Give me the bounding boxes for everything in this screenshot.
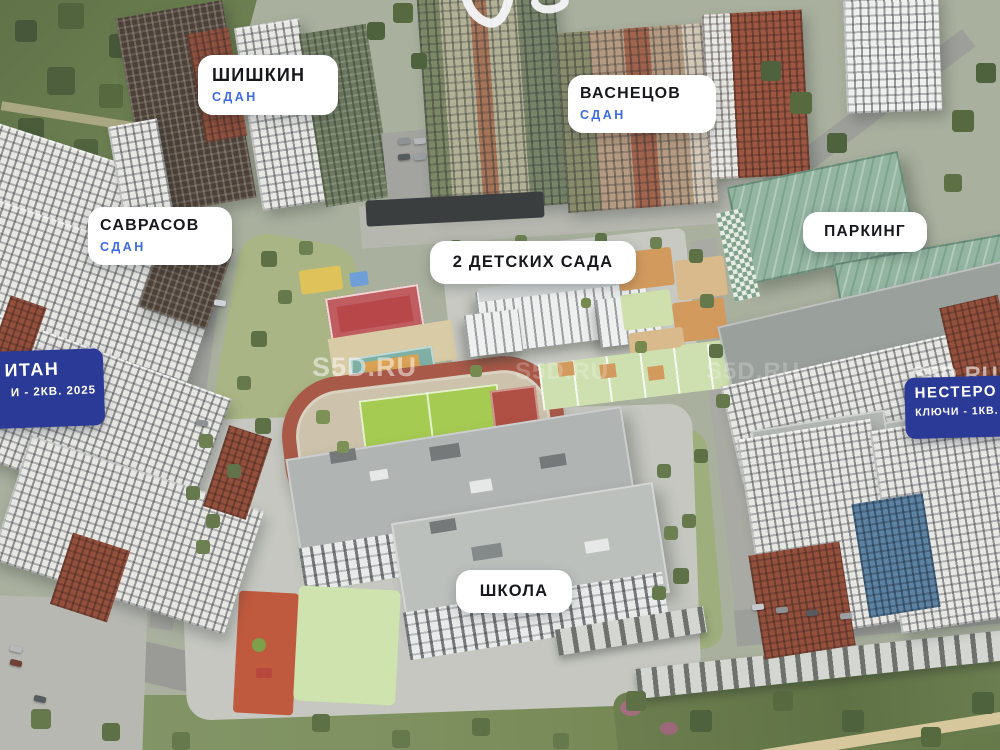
flower-bush <box>660 722 678 735</box>
label-name: ШИШКИН <box>212 66 324 85</box>
tree-dots <box>0 0 2 2</box>
bottom-left-pavement <box>0 595 148 750</box>
highrise-tower <box>843 0 942 114</box>
label-status: СДАН <box>100 240 220 254</box>
play-structure <box>256 668 272 678</box>
watermark: S5D.RU <box>706 358 800 386</box>
car <box>398 153 411 160</box>
car <box>398 137 411 144</box>
yard-canopy <box>647 365 665 381</box>
label-kindergartens[interactable]: 2 ДЕТСКИХ САДА <box>430 241 636 284</box>
car <box>840 612 852 619</box>
label-name: САВРАСОВ <box>100 218 220 235</box>
banner-right-keys[interactable]: НЕСТЕРО КЛЮЧИ - 1КВ. <box>904 374 1000 439</box>
playground-patch <box>674 255 729 301</box>
car <box>752 603 764 610</box>
play-structure <box>252 638 266 652</box>
banner-keys-date: КЛЮЧИ - 1КВ. <box>915 403 1000 419</box>
label-savrasov[interactable]: САВРАСОВ СДАН <box>88 207 232 265</box>
residential-brick-section <box>748 541 855 659</box>
label-school[interactable]: ШКОЛА <box>456 570 572 613</box>
banner-building-name: НЕСТЕРО <box>914 381 1000 402</box>
flower-bush <box>620 700 642 716</box>
kids-play-area-blue <box>349 271 369 287</box>
label-name: ШКОЛА <box>480 583 549 600</box>
red-playground-strip <box>233 591 299 716</box>
label-name: ВАСНЕЦОВ <box>580 86 704 103</box>
label-name: 2 ДЕТСКИХ САДА <box>453 254 614 271</box>
masterplan-render: S5D.RU S5D.RU S5D.RU S5D.RU ШИШКИН СДАН … <box>0 0 1000 750</box>
playground-patch <box>620 289 674 331</box>
label-name: ПАРКИНГ <box>824 224 906 240</box>
label-vasnetsov[interactable]: ВАСНЕЦОВ СДАН <box>568 75 716 133</box>
kindergarten-wing-west <box>464 309 524 357</box>
residential-tower <box>702 9 810 179</box>
label-status: СДАН <box>212 90 324 104</box>
car <box>806 609 818 616</box>
car <box>776 606 788 613</box>
banner-building-name: ИТАН <box>0 357 98 383</box>
label-parking[interactable]: ПАРКИНГ <box>803 212 927 252</box>
label-shishkin[interactable]: ШИШКИН СДАН <box>198 55 338 115</box>
lawn-patch <box>293 585 401 705</box>
script-logo-partial-icon <box>435 0 605 34</box>
banner-keys-date: И - 2КВ. 2025 <box>0 384 98 401</box>
watermark: S5D.RU <box>515 358 609 386</box>
banner-left-keys[interactable]: ИТАН И - 2КВ. 2025 <box>0 348 105 431</box>
car <box>414 153 427 160</box>
watermark: S5D.RU <box>312 352 417 383</box>
label-status: СДАН <box>580 108 704 122</box>
car <box>414 137 427 144</box>
